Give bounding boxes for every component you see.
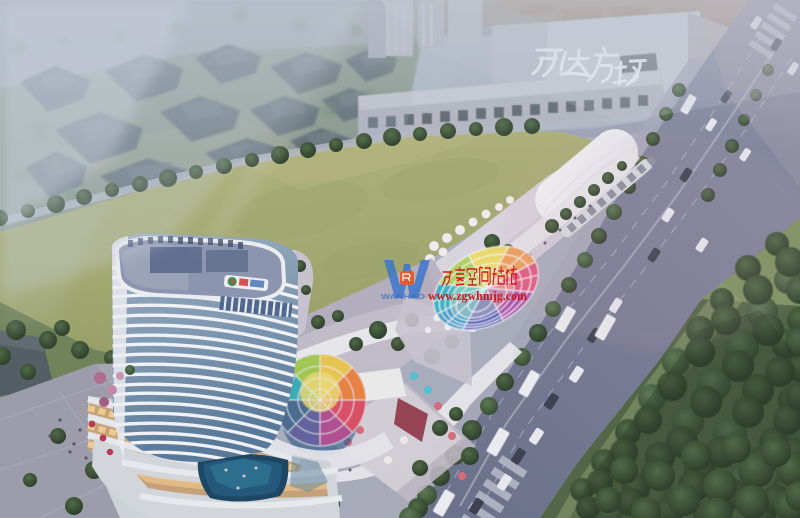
svg-text:WANHAO: WANHAO xyxy=(381,292,425,301)
svg-text:www.zgwhmjg.com: www.zgwhmjg.com xyxy=(428,288,527,303)
